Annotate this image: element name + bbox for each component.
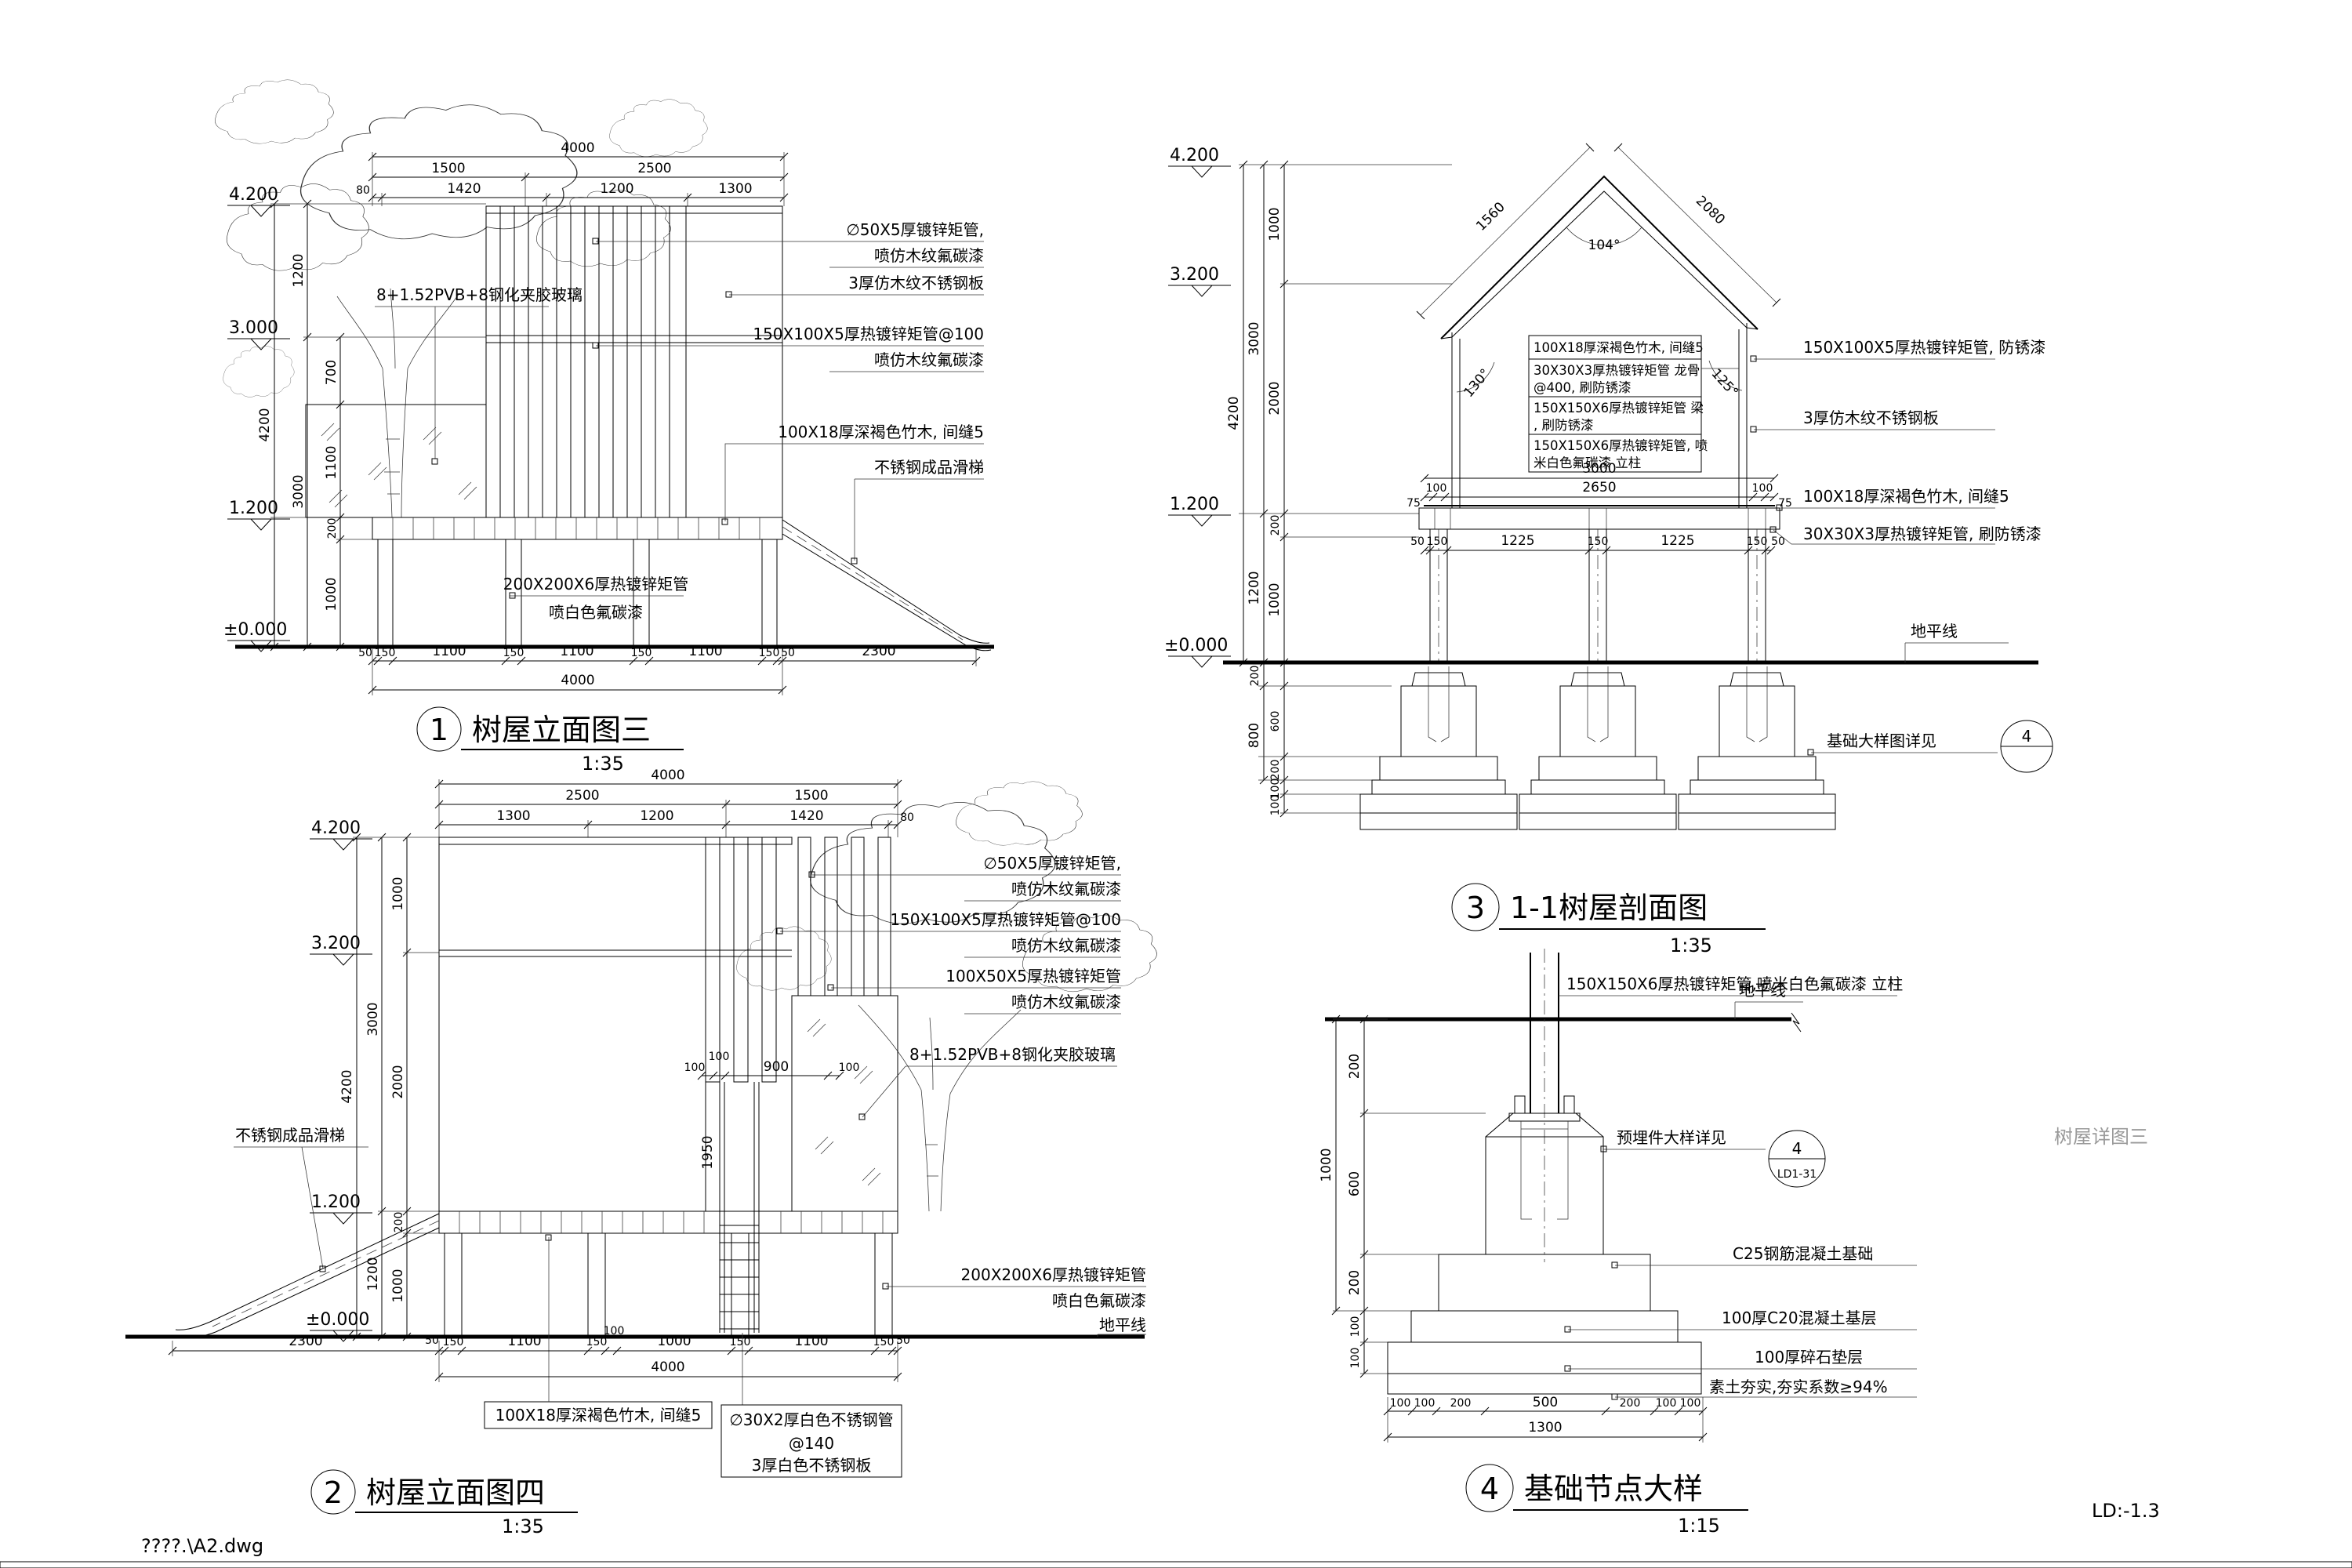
dim: 150 xyxy=(1747,535,1768,548)
posts xyxy=(445,1233,892,1337)
dim: 1100 xyxy=(324,445,339,479)
angle: 130° xyxy=(1461,366,1494,401)
level-label: 4.200 xyxy=(229,185,278,205)
drawing-scale: 1:35 xyxy=(502,1515,544,1537)
detail-ref-number: 4 xyxy=(2022,727,2032,746)
dim: 150 xyxy=(873,1336,895,1348)
dim: 200 xyxy=(393,1212,405,1233)
dim: 100 xyxy=(1414,1397,1436,1410)
annotation: ∅30X2厚白色不锈钢管 xyxy=(729,1410,893,1429)
dim: 200 xyxy=(326,518,339,539)
dim: 1000 xyxy=(1267,207,1283,241)
dim: 1420 xyxy=(789,808,823,824)
annotation: 基础大样图详见 xyxy=(1827,731,1936,750)
d4-left-dims: 1000 200 600 200 100 100 xyxy=(1319,1015,1486,1377)
dim: 1200 xyxy=(291,253,307,287)
annotation: 喷白色氟碳漆 xyxy=(1052,1291,1146,1310)
dim: 200 xyxy=(1620,1397,1641,1410)
dim: 1000 xyxy=(1267,583,1283,616)
annotation: 100X18厚深褐色竹木, 间缝5 xyxy=(495,1406,702,1425)
d2-mid-dims: 100 100 900 100 1950 xyxy=(684,1051,860,1170)
dim: 4200 xyxy=(339,1069,355,1103)
dim: 50 xyxy=(358,647,372,659)
d4-bottom-dims: 100 100 200 500 200 100 100 1300 xyxy=(1384,1395,1707,1443)
dim: 50 xyxy=(425,1334,439,1347)
drawing-3-section: 4.200 3.200 1.200 ±0.000 4200 3000 1200 … xyxy=(1164,143,2053,956)
annotation: C25钢筋混凝土基础 xyxy=(1733,1244,1873,1263)
annotation: 100X50X5厚热镀锌矩管 xyxy=(946,967,1121,985)
dim: 1200 xyxy=(1247,571,1262,604)
dim: 2650 xyxy=(1582,480,1616,495)
dim: 80 xyxy=(900,811,914,824)
note: 150X150X6厚热镀锌矩管, 喷 xyxy=(1534,438,1708,453)
dim: 4200 xyxy=(1226,396,1242,430)
dim: 900 xyxy=(764,1059,789,1075)
pedestal xyxy=(1679,666,1835,829)
dim: 200 xyxy=(1249,666,1261,687)
dim: 1100 xyxy=(507,1334,541,1349)
pedestal xyxy=(1519,666,1676,829)
title-number: 2 xyxy=(324,1475,343,1510)
dim: 100 xyxy=(684,1062,706,1074)
ground-line-label: 地平线 xyxy=(1911,622,1958,641)
dim: 1420 xyxy=(447,181,481,197)
d3-foundations xyxy=(1360,666,1835,829)
annotation: 喷仿木纹氟碳漆 xyxy=(1011,880,1121,898)
dim: 50 xyxy=(1410,535,1425,548)
d2-bottom-dims: 2300 50 150 1100 150 100 1000 150 1100 1… xyxy=(169,1325,910,1382)
level-label: ±0.000 xyxy=(306,1310,369,1330)
annotation: 200X200X6厚热镀锌矩管 xyxy=(961,1265,1146,1284)
dim: 1000 xyxy=(390,1269,406,1302)
dim: 1000 xyxy=(1319,1148,1334,1181)
dim: 1560 xyxy=(1473,199,1508,234)
annotation: 喷仿木纹氟碳漆 xyxy=(874,246,984,265)
note: 米白色氟碳漆 立柱 xyxy=(1534,456,1641,470)
dim: 100 xyxy=(839,1062,860,1074)
dim: 100 xyxy=(1752,482,1773,495)
d3-left-dims: 4200 3000 1200 1000 2000 200 1000 200 80… xyxy=(1226,161,1452,817)
dim: 150 xyxy=(443,1336,464,1348)
slide-label: 不锈钢成品滑梯 xyxy=(235,1126,345,1145)
dim: 1225 xyxy=(1501,533,1534,549)
annotation: 地平线 xyxy=(1099,1316,1146,1334)
dim: 100 xyxy=(1390,1397,1411,1410)
dim: 4000 xyxy=(561,673,594,688)
detail-ref-number: 4 xyxy=(1792,1139,1802,1158)
dim: 100 xyxy=(1349,1348,1362,1369)
d1-annotations: ∅50X5厚镀锌矩管, 喷仿木纹氟碳漆 3厚仿木纹不锈钢板 150X100X5厚… xyxy=(503,220,984,622)
dim: 3000 xyxy=(365,1002,381,1036)
annotation: 不锈钢成品滑梯 xyxy=(874,458,984,477)
drawing-title: 基础节点大样 xyxy=(1524,1472,1703,1506)
level-label: 4.200 xyxy=(311,818,361,838)
side-note: 树屋详图三 xyxy=(2054,1126,2148,1148)
dim: 1200 xyxy=(640,808,673,824)
level-label: 3.200 xyxy=(1170,265,1219,285)
dim: 150 xyxy=(1588,535,1609,548)
dim: 75 xyxy=(1406,497,1421,510)
dim: 1200 xyxy=(600,181,633,197)
d3-title: 3 1-1树屋剖面图 1:35 xyxy=(1452,884,1766,956)
file-path-label: ????.\A2.dwg xyxy=(141,1535,263,1557)
note: 100X18厚深褐色竹木, 间缝5 xyxy=(1534,340,1704,355)
dim: 150 xyxy=(631,647,652,659)
d4-column: 150X150X6厚热镀锌矩管,喷米白色氟碳漆 立柱 xyxy=(1530,949,1903,1262)
drawing-scale: 1:35 xyxy=(582,753,624,775)
dim: 100 xyxy=(709,1051,730,1063)
dim: 150 xyxy=(1427,535,1448,548)
dim: 1300 xyxy=(1528,1420,1562,1436)
d1-bottom-dims: 50 150 1100 150 1100 150 1100 150 50 230… xyxy=(358,644,980,695)
angle: 104° xyxy=(1588,238,1621,253)
dim: 1950 xyxy=(700,1135,716,1169)
dim: 80 xyxy=(356,184,370,197)
dim: 1500 xyxy=(794,788,828,804)
dim: 2500 xyxy=(637,161,671,176)
deck xyxy=(439,1211,898,1233)
d4-title: 4 基础节点大样 1:15 xyxy=(1466,1465,1748,1537)
d1-glass-note: 8+1.52PVB+8钢化夹胶玻璃 xyxy=(375,285,583,464)
dim: 700 xyxy=(324,360,339,385)
annotation: 喷仿木纹氟碳漆 xyxy=(1011,936,1121,955)
dim: 200 xyxy=(1269,515,1282,536)
annotation: 100X18厚深褐色竹木, 间缝5 xyxy=(778,423,984,441)
dim: 4000 xyxy=(651,1359,684,1375)
angle: 125° xyxy=(1708,366,1741,401)
drawing-1-elevation-three: 4000 1500 2500 80 1420 1200 1300 4.200 3… xyxy=(215,80,994,775)
dim: 100 xyxy=(1426,482,1447,495)
note: @400, 刷防锈漆 xyxy=(1534,380,1631,395)
level-label: 1.200 xyxy=(1170,495,1219,514)
annotation: 30X30X3厚热镀锌矩管, 刷防锈漆 xyxy=(1803,524,2042,543)
sheet-number: LD:-1.3 xyxy=(2092,1500,2160,1522)
dim: 150 xyxy=(503,647,524,659)
dim: 100 xyxy=(1269,795,1282,816)
d2-top-dims: 4000 2500 1500 1300 1200 1420 80 xyxy=(435,768,914,837)
annotation: ∅50X5厚镀锌矩管, xyxy=(846,220,984,239)
dim: 100 xyxy=(1656,1397,1677,1410)
annotation: 150X100X5厚热镀锌矩管@100 xyxy=(890,910,1121,929)
dim: 50 xyxy=(896,1334,910,1347)
annotation: 素土夯实,夯实系数≥94% xyxy=(1709,1377,1888,1396)
glass-label: 8+1.52PVB+8钢化夹胶玻璃 xyxy=(909,1045,1116,1064)
dim: 150 xyxy=(586,1336,608,1348)
annotation: 3厚白色不锈钢板 xyxy=(752,1456,872,1475)
dim: 800 xyxy=(1247,723,1262,748)
dim: 150 xyxy=(730,1336,751,1348)
d3-right-annotations: 150X100X5厚热镀锌矩管, 防锈漆 3厚仿木纹不锈钢板 100X18厚深褐… xyxy=(1751,338,2053,772)
dim: 1100 xyxy=(432,644,466,659)
annotation: 150X100X5厚热镀锌矩管@100 xyxy=(753,325,984,343)
dim: 2000 xyxy=(390,1065,406,1098)
dim: 100 xyxy=(1680,1397,1701,1410)
level-label: 1.200 xyxy=(311,1192,361,1212)
detail-ref-code: LD1-31 xyxy=(1777,1168,1817,1181)
dim: 3000 xyxy=(1247,321,1262,355)
annotation: 喷仿木纹氟碳漆 xyxy=(1011,993,1121,1011)
annotation: 3厚仿木纹不锈钢板 xyxy=(848,274,984,292)
dim: 1200 xyxy=(365,1257,381,1290)
dim: 1300 xyxy=(718,181,752,197)
dim: 600 xyxy=(1347,1171,1363,1196)
slide xyxy=(782,520,991,651)
annotation: 100厚碎石垫层 xyxy=(1755,1348,1863,1367)
annotation: 3厚仿木纹不锈钢板 xyxy=(1803,408,1939,427)
drawing-4-foundation-detail: 地平线 150X150X6厚热镀锌矩管,喷米白色氟碳漆 立柱 1000 200 … xyxy=(1319,949,1917,1537)
dim: 500 xyxy=(1533,1395,1558,1410)
level-label: ±0.000 xyxy=(223,620,287,640)
cad-sheet: 4000 1500 2500 80 1420 1200 1300 4.200 3… xyxy=(0,0,2352,1568)
platform xyxy=(1419,506,1780,529)
dim: 50 xyxy=(781,647,795,659)
dim: 200 xyxy=(1347,1054,1363,1079)
note: 150X150X6厚热镀锌矩管 梁 xyxy=(1534,401,1704,416)
note: , 刷防锈漆 xyxy=(1534,418,1594,433)
annotation: 喷白色氟碳漆 xyxy=(549,603,643,622)
title-number: 3 xyxy=(1466,891,1485,925)
d2-left-dims: 4200 3000 1200 1000 2000 200 1000 xyxy=(339,833,439,1341)
pedestal xyxy=(1360,666,1517,829)
dim: 2500 xyxy=(565,788,599,804)
ladder xyxy=(720,1082,759,1333)
dim: 4200 xyxy=(257,408,273,441)
dim: 100 xyxy=(604,1325,625,1338)
annotation: 预埋件大样详见 xyxy=(1617,1128,1726,1147)
deck xyxy=(372,517,782,539)
drawing-title: 1-1树屋剖面图 xyxy=(1510,891,1708,925)
posts xyxy=(1430,529,1766,662)
d4-annotations: 预埋件大样详见 4 LD1-31 C25钢筋混凝土基础 100厚C20混凝土基层… xyxy=(1565,1128,1917,1399)
dim: 1100 xyxy=(560,644,593,659)
d3-notes: 100X18厚深褐色竹木, 间缝5 30X30X3厚热镀锌矩管 龙骨 @400,… xyxy=(1529,336,1739,472)
dim: 2080 xyxy=(1693,193,1728,227)
annotation: @140 xyxy=(789,1434,834,1453)
dim: 4000 xyxy=(651,768,684,783)
dim: 4000 xyxy=(561,140,594,156)
dim: 1300 xyxy=(496,808,530,824)
dim: 1500 xyxy=(431,161,465,176)
annotation: 喷仿木纹氟碳漆 xyxy=(874,350,984,369)
title-number: 4 xyxy=(1480,1472,1499,1506)
column-note: 150X150X6厚热镀锌矩管,喷米白色氟碳漆 立柱 xyxy=(1566,975,1903,993)
dim: 3000 xyxy=(291,474,307,508)
glass-panel xyxy=(792,996,898,1211)
level-label: 4.200 xyxy=(1170,146,1219,165)
dim: 200 xyxy=(1269,760,1282,781)
dim: 2300 xyxy=(862,644,895,659)
dim: 600 xyxy=(1269,711,1282,732)
annotation: 100厚C20混凝土基层 xyxy=(1722,1308,1877,1327)
drawing-title: 树屋立面图三 xyxy=(472,713,651,747)
level-label: ±0.000 xyxy=(1164,636,1228,655)
dim: 1100 xyxy=(688,644,722,659)
dim: 2300 xyxy=(289,1334,322,1349)
dim: 1100 xyxy=(794,1334,828,1349)
dim: 150 xyxy=(759,647,780,659)
dim: 100 xyxy=(1349,1316,1362,1338)
d2-title: 2 树屋立面图四 1:35 xyxy=(311,1470,578,1537)
dim: 200 xyxy=(1347,1270,1363,1295)
annotation: 150X100X5厚热镀锌矩管, 防锈漆 xyxy=(1803,338,2045,357)
dim: 200 xyxy=(1450,1397,1472,1410)
dim: 75 xyxy=(1778,497,1792,510)
drawing-scale: 1:35 xyxy=(1670,935,1712,956)
d1-top-dims: 4000 1500 2500 80 1420 1200 1300 xyxy=(356,140,788,206)
dim: 1225 xyxy=(1661,533,1694,549)
level-label: 1.200 xyxy=(229,499,278,518)
glass-label: 8+1.52PVB+8钢化夹胶玻璃 xyxy=(376,285,583,304)
annotation: ∅50X5厚镀锌矩管, xyxy=(983,854,1121,873)
bottom-bar xyxy=(0,1562,2352,1568)
dim: 2000 xyxy=(1267,381,1283,415)
note: 30X30X3厚热镀锌矩管 龙骨 xyxy=(1534,363,1700,378)
annotation: 200X200X6厚热镀锌矩管 xyxy=(503,575,688,593)
d1-left-dims: 4200 1200 3000 700 1100 200 1000 xyxy=(257,200,486,651)
dim: 1000 xyxy=(324,577,339,611)
dim: 150 xyxy=(375,647,396,659)
level-label: 3.000 xyxy=(229,318,278,338)
drawing-scale: 1:15 xyxy=(1678,1515,1720,1537)
annotation: 100X18厚深褐色竹木, 间缝5 xyxy=(1803,487,2009,506)
d3-levels: 4.200 3.200 1.200 ±0.000 xyxy=(1164,146,1231,667)
drawing-title: 树屋立面图四 xyxy=(366,1475,545,1510)
dim: 1000 xyxy=(390,877,406,910)
drawing-2-elevation-four: 4000 2500 1500 1300 1200 1420 80 4.200 3… xyxy=(125,768,1156,1537)
dim: 1000 xyxy=(657,1334,691,1349)
level-label: 3.200 xyxy=(311,934,361,953)
d2-under-annotations: 100X18厚深褐色竹木, 间缝5 ∅30X2厚白色不锈钢管 @140 3厚白色… xyxy=(485,1235,902,1477)
d1-title: 1 树屋立面图三 1:35 xyxy=(417,707,684,775)
title-number: 1 xyxy=(430,713,448,747)
